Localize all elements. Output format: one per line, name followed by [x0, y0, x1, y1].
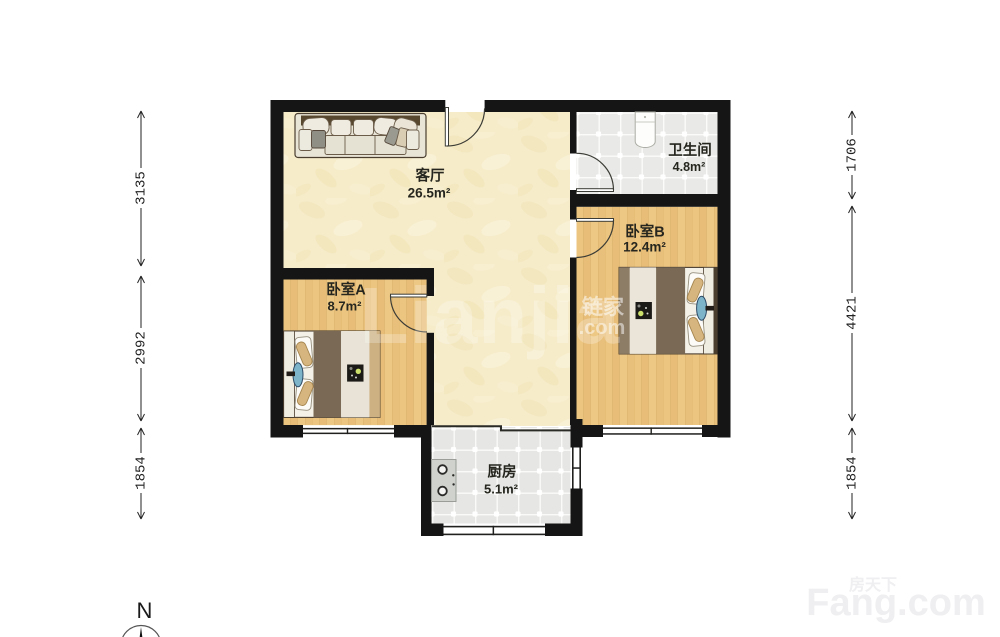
svg-text:4421: 4421	[845, 296, 861, 330]
svg-text:N: N	[137, 598, 153, 623]
svg-text:卧室A: 卧室A	[326, 281, 366, 299]
svg-text:客厅: 客厅	[415, 167, 445, 185]
svg-text:5.1m²: 5.1m²	[484, 482, 519, 497]
svg-text:12.4m²: 12.4m²	[623, 240, 666, 255]
svg-text:Fang.com: Fang.com	[806, 582, 985, 624]
svg-text:26.5m²: 26.5m²	[408, 186, 451, 201]
svg-text:3135: 3135	[134, 171, 150, 205]
svg-text:卧室B: 卧室B	[625, 223, 664, 241]
svg-text:链家: 链家	[582, 295, 625, 319]
svg-text:厨房: 厨房	[488, 463, 517, 481]
svg-text:.com: .com	[579, 317, 626, 339]
svg-text:1706: 1706	[845, 138, 861, 172]
svg-text:2992: 2992	[134, 331, 150, 365]
svg-text:卫生间: 卫生间	[668, 141, 712, 159]
svg-text:8.7m²: 8.7m²	[328, 299, 363, 314]
svg-text:4.8m²: 4.8m²	[673, 160, 706, 174]
svg-text:1854: 1854	[845, 456, 861, 490]
svg-text:1854: 1854	[134, 456, 150, 490]
